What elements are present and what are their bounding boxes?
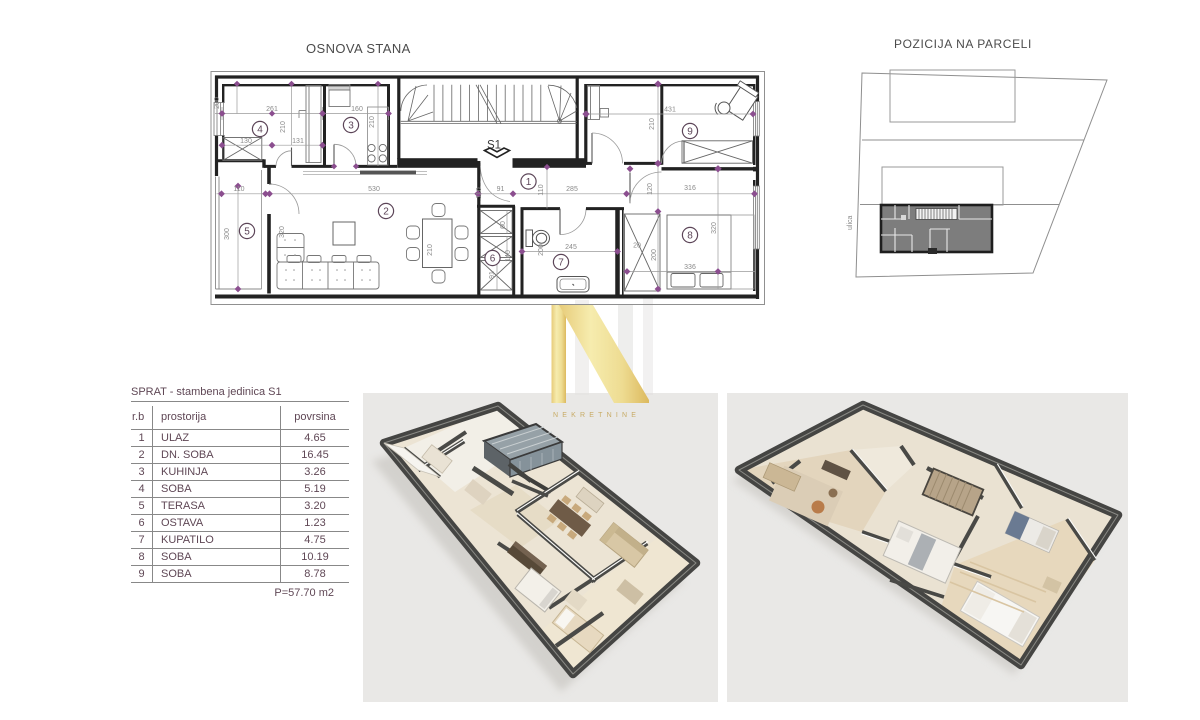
svg-text:2: 2 bbox=[383, 207, 389, 218]
svg-text:120: 120 bbox=[647, 183, 654, 195]
svg-text:210: 210 bbox=[427, 244, 434, 256]
svg-text:5: 5 bbox=[244, 227, 250, 238]
svg-text:300: 300 bbox=[224, 228, 231, 240]
svg-text:6: 6 bbox=[490, 254, 496, 265]
svg-text:91: 91 bbox=[489, 271, 496, 279]
svg-text:530: 530 bbox=[368, 186, 380, 193]
svg-text:20: 20 bbox=[633, 243, 641, 250]
svg-text:131: 131 bbox=[292, 138, 304, 145]
svg-text:4: 4 bbox=[257, 125, 263, 136]
svg-text:130: 130 bbox=[240, 138, 252, 145]
svg-text:200: 200 bbox=[214, 97, 221, 109]
svg-text:9: 9 bbox=[687, 127, 693, 138]
svg-text:320: 320 bbox=[279, 226, 286, 238]
svg-text:210: 210 bbox=[280, 121, 287, 133]
svg-text:200: 200 bbox=[651, 249, 658, 261]
svg-text:110: 110 bbox=[538, 184, 545, 195]
svg-text:3: 3 bbox=[348, 121, 354, 132]
svg-text:200: 200 bbox=[538, 244, 545, 256]
svg-text:60: 60 bbox=[500, 221, 507, 229]
svg-text:210: 210 bbox=[369, 116, 376, 128]
svg-text:320: 320 bbox=[711, 222, 718, 234]
svg-text:431: 431 bbox=[664, 107, 676, 114]
svg-text:245: 245 bbox=[565, 244, 577, 251]
svg-text:336: 336 bbox=[684, 264, 696, 271]
svg-text:140: 140 bbox=[505, 250, 512, 262]
svg-text:316: 316 bbox=[684, 185, 696, 192]
svg-text:110: 110 bbox=[476, 187, 483, 198]
svg-text:7: 7 bbox=[558, 258, 564, 269]
svg-text:8: 8 bbox=[687, 231, 693, 242]
svg-text:110: 110 bbox=[233, 186, 244, 193]
svg-text:ulica: ulica bbox=[847, 215, 854, 230]
svg-text:91: 91 bbox=[497, 186, 505, 193]
svg-text:285: 285 bbox=[566, 186, 578, 193]
svg-text:1: 1 bbox=[526, 177, 532, 188]
svg-text:210: 210 bbox=[649, 118, 656, 130]
svg-text:160: 160 bbox=[351, 106, 363, 113]
svg-text:261: 261 bbox=[266, 106, 278, 113]
